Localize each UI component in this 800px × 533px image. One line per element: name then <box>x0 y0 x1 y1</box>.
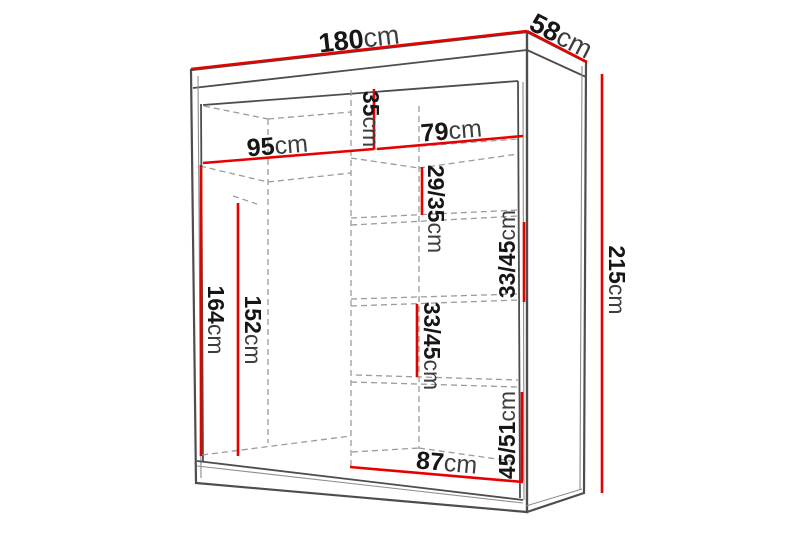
top-shelf-underside-back <box>268 173 351 182</box>
label-87: 87cm <box>415 446 478 479</box>
label-45-51: 45/51cm <box>494 391 520 479</box>
top-shelf-underside-left <box>200 166 268 182</box>
top-rail-edge <box>193 50 527 88</box>
label-95: 95cm <box>246 130 309 163</box>
label-width-180: 180cm <box>317 20 401 59</box>
label-height-215: 215cm <box>604 245 630 314</box>
floor-back-edge-left <box>202 436 351 455</box>
label-depth-58: 58cm <box>525 8 597 65</box>
back-wall-top-edge <box>268 112 351 119</box>
diagram-canvas: 180cm 58cm 215cm 95cm 35cm 79cm 29/35cm … <box>0 0 800 533</box>
label-33-45-right: 33/45cm <box>494 210 520 298</box>
label-164: 164cm <box>203 285 229 354</box>
ceiling-back-edge-left <box>204 106 268 119</box>
clothes-rail <box>233 196 257 204</box>
wardrobe-body <box>191 32 586 512</box>
label-33-45-left: 33/45cm <box>419 302 445 390</box>
side-panel <box>527 32 586 512</box>
side-back-inner-edge <box>580 66 582 490</box>
measurement-lines <box>191 31 602 493</box>
label-29-35: 29/35cm <box>423 165 449 253</box>
label-79: 79cm <box>420 114 483 147</box>
label-152: 152cm <box>240 295 266 364</box>
dimension-labels: 180cm 58cm 215cm 95cm 35cm 79cm 29/35cm … <box>203 8 630 480</box>
label-35: 35cm <box>358 91 384 147</box>
wardrobe-dimension-diagram: 180cm 58cm 215cm 95cm 35cm 79cm 29/35cm … <box>0 0 800 533</box>
